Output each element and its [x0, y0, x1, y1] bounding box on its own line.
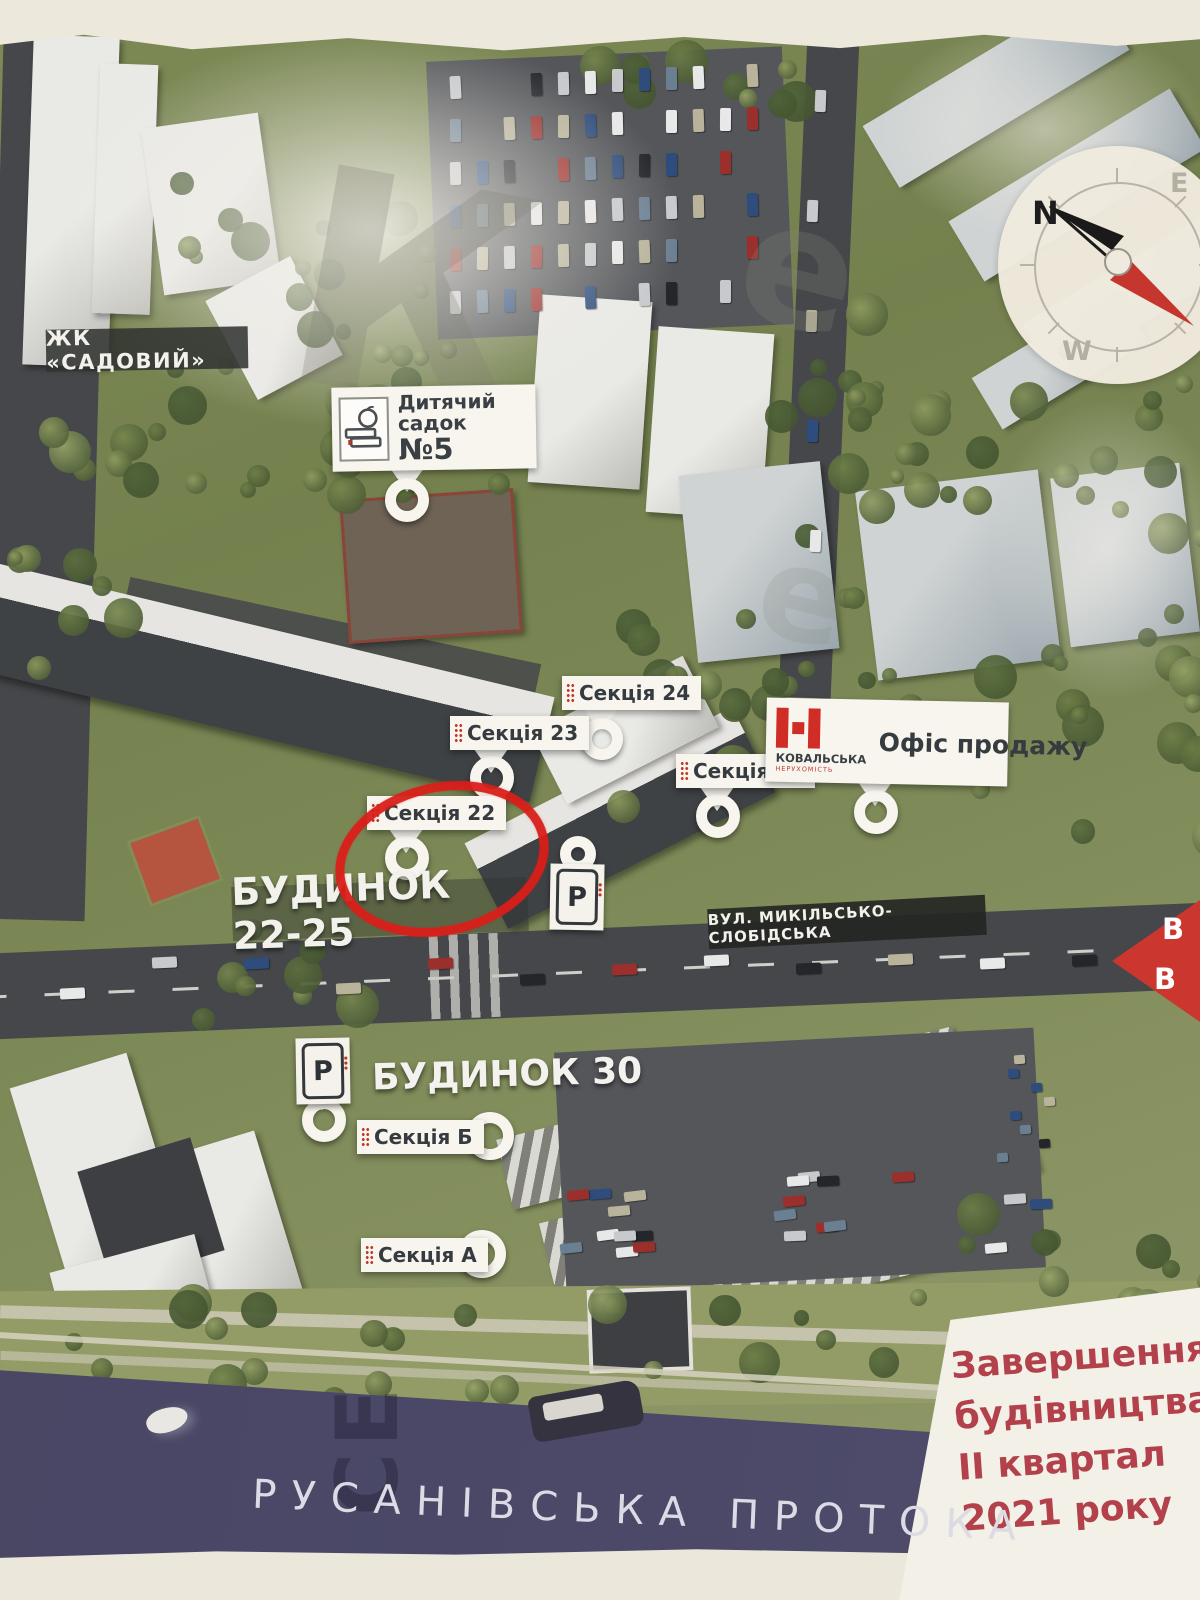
car: [450, 291, 462, 314]
tree: [974, 655, 1018, 699]
car: [585, 199, 597, 222]
car: [666, 196, 678, 219]
tree: [382, 201, 417, 236]
tree: [719, 691, 750, 722]
car: [980, 958, 1006, 970]
tree: [890, 469, 905, 484]
tree: [314, 259, 345, 290]
sales-office-label: КОВАЛЬСЬКА НЕРУХОМІСТЬ Офіс продажу: [765, 697, 1009, 786]
car: [888, 953, 914, 965]
car: [747, 236, 758, 259]
road-centerline: [0, 944, 1200, 999]
compass-east: E: [1170, 168, 1188, 199]
car: [720, 151, 731, 174]
tree: [336, 324, 352, 340]
car: [806, 420, 818, 442]
car: [428, 957, 454, 969]
section-marker-dots: [365, 1245, 374, 1265]
car: [450, 119, 461, 142]
car: [60, 988, 86, 1000]
parking-letter: P: [556, 869, 599, 926]
tree: [92, 576, 112, 596]
car: [477, 290, 489, 313]
tree: [762, 668, 789, 695]
car: [477, 247, 488, 270]
car: [244, 957, 270, 969]
car: [633, 1241, 656, 1252]
tree: [709, 1295, 741, 1327]
tree: [1053, 656, 1068, 671]
car: [666, 153, 678, 176]
tree: [391, 345, 413, 367]
car: [477, 161, 488, 184]
section-23-text: Секція 23: [467, 721, 578, 745]
tree: [465, 1379, 489, 1403]
tree: [858, 672, 875, 689]
tree: [736, 609, 756, 629]
section-b-text: Секція Б: [374, 1125, 473, 1149]
car: [747, 107, 759, 130]
tree: [846, 293, 888, 335]
car: [558, 157, 570, 180]
tree: [185, 472, 207, 494]
car: [1044, 1097, 1056, 1107]
car: [639, 154, 650, 177]
car: [558, 71, 570, 94]
tree: [848, 407, 873, 432]
car: [450, 248, 461, 271]
tree: [286, 283, 313, 310]
car: [530, 72, 542, 96]
car: [815, 90, 827, 112]
car: [531, 288, 543, 311]
tree: [440, 341, 457, 358]
building-tower: [528, 294, 653, 489]
tree: [413, 349, 429, 365]
tree: [739, 89, 758, 108]
car: [720, 280, 731, 303]
car: [152, 956, 178, 968]
tree: [963, 486, 992, 515]
car: [1038, 1139, 1050, 1149]
car: [720, 108, 731, 131]
car: [1003, 1193, 1026, 1204]
tree: [91, 1358, 113, 1380]
car: [531, 202, 542, 225]
car: [560, 1241, 583, 1253]
tree: [316, 220, 332, 236]
tree: [1076, 486, 1095, 505]
tree: [778, 60, 797, 79]
compass-north: N: [1032, 194, 1059, 232]
car: [997, 1153, 1009, 1163]
section-b-label: Секція Б: [357, 1120, 484, 1154]
car: [747, 193, 759, 216]
tree: [148, 423, 166, 441]
kindergarten-number: №5: [398, 432, 536, 465]
compass-rose: N E W S: [998, 146, 1200, 384]
parking-icon: P: [295, 1038, 350, 1105]
tree: [235, 976, 256, 997]
tree: [768, 90, 796, 118]
tree: [588, 1285, 626, 1323]
section-marker-dots: [680, 761, 689, 781]
tree: [882, 668, 897, 683]
tree: [1071, 819, 1095, 843]
car: [693, 66, 705, 89]
car: [796, 963, 822, 975]
car: [639, 68, 650, 91]
car: [585, 156, 597, 179]
tree: [910, 394, 952, 436]
section-marker-dots: [361, 1127, 370, 1147]
car: [585, 70, 596, 93]
tree: [1162, 1260, 1180, 1278]
car: [693, 195, 705, 218]
section-a-label: Секція А: [361, 1238, 488, 1272]
car: [450, 162, 462, 185]
parking-letter: P: [302, 1043, 345, 1100]
car: [585, 242, 596, 265]
sales-office-pin: [854, 790, 898, 834]
tree: [168, 386, 207, 425]
tree: [828, 453, 869, 494]
building-30-label: БУДИНОК 30: [372, 1050, 643, 1098]
section-24-label: Секція 24: [562, 676, 701, 710]
car: [504, 289, 515, 312]
tree: [848, 389, 865, 406]
exit-arrow-text: В: [1162, 912, 1184, 946]
compass-west: W: [1062, 336, 1092, 367]
car: [666, 110, 677, 133]
tree: [27, 656, 51, 680]
car: [612, 112, 623, 135]
tree: [205, 1317, 228, 1340]
tree: [490, 1375, 519, 1404]
tree: [843, 587, 865, 609]
car: [693, 109, 705, 132]
car: [806, 200, 818, 222]
kindergarten-building: [339, 488, 523, 644]
car: [817, 1175, 840, 1186]
tree: [607, 790, 640, 823]
tree: [414, 283, 429, 298]
tree: [940, 486, 957, 503]
building: [141, 113, 281, 296]
kindergarten-title: Дитячий садок: [397, 390, 536, 434]
exit-arrow-text: В: [1154, 962, 1176, 996]
car: [504, 203, 516, 226]
parking-icon: P: [549, 864, 604, 931]
tree: [859, 489, 894, 524]
car: [787, 1175, 810, 1187]
tree: [218, 208, 243, 233]
tree: [810, 359, 827, 376]
car: [704, 955, 730, 967]
car: [666, 67, 677, 90]
car: [612, 69, 623, 92]
tree: [169, 1290, 208, 1329]
car: [558, 243, 569, 266]
tree: [58, 605, 89, 636]
car: [666, 282, 677, 305]
kindergarten-icon: [338, 397, 389, 462]
car: [666, 239, 677, 262]
tree: [1053, 463, 1078, 488]
tree: [798, 378, 837, 417]
car: [1013, 1055, 1025, 1065]
tree: [794, 1310, 809, 1325]
kovalska-logo: [776, 707, 821, 748]
section-24-text: Секція 24: [579, 681, 690, 705]
car: [810, 530, 822, 552]
tree: [1031, 1229, 1058, 1256]
car: [746, 64, 758, 88]
kindergarten-label: Дитячий садок №5: [331, 384, 536, 472]
car: [504, 246, 515, 269]
tree: [1039, 1266, 1069, 1296]
car: [1031, 1083, 1043, 1093]
car: [639, 197, 651, 220]
section-a-text: Секція А: [378, 1243, 477, 1267]
car: [612, 198, 624, 221]
complex-label: ЖК «САДОВИЙ»: [46, 326, 249, 372]
car: [639, 240, 651, 263]
car: [503, 160, 515, 183]
tree: [957, 1193, 1000, 1236]
tree: [1184, 694, 1200, 713]
tree: [816, 1330, 836, 1350]
car: [614, 1230, 637, 1241]
car: [520, 973, 546, 985]
car: [892, 1171, 915, 1182]
car: [336, 982, 362, 994]
kindergarten-pin: [385, 478, 429, 522]
brand-name: КОВАЛЬСЬКА: [776, 750, 867, 766]
tree: [1010, 382, 1048, 420]
tree: [765, 400, 798, 433]
tree: [1144, 456, 1176, 488]
car: [449, 76, 461, 100]
printed-masterplan-photo: СЕ РУСАНІВСЬКА ПРОТОКА К е е ЖК «САДОВИЙ…: [0, 0, 1200, 1600]
section-marker-dots: [566, 683, 575, 703]
tree: [1071, 707, 1087, 723]
car: [1020, 1125, 1032, 1135]
tree: [104, 598, 143, 637]
tree: [958, 1236, 976, 1254]
car: [531, 245, 542, 268]
car: [558, 115, 569, 138]
car: [584, 285, 596, 309]
tree: [627, 624, 659, 656]
tree: [247, 465, 269, 487]
tree: [910, 1289, 927, 1306]
building-tower: [679, 461, 840, 663]
car: [1072, 955, 1098, 967]
car: [806, 310, 818, 332]
tree: [39, 417, 70, 448]
car: [612, 241, 623, 264]
tree: [241, 1292, 277, 1328]
car: [784, 1230, 806, 1241]
car: [639, 283, 651, 306]
tree: [170, 172, 193, 195]
car: [1009, 1111, 1021, 1121]
section-23-label: Секція 23: [450, 716, 589, 750]
car: [612, 155, 624, 178]
car: [531, 116, 543, 139]
tree: [1148, 513, 1189, 554]
exit-arrow: [1112, 900, 1200, 1022]
car: [612, 963, 638, 975]
tree: [418, 243, 438, 263]
section-25-pin: [696, 794, 740, 838]
car: [503, 117, 515, 141]
car: [584, 113, 596, 136]
section-marker-dots: [454, 723, 463, 743]
car: [558, 201, 569, 224]
tree: [327, 475, 366, 514]
tree: [192, 1008, 215, 1031]
tree: [1112, 501, 1129, 518]
car: [984, 1242, 1007, 1254]
tree: [1164, 604, 1184, 624]
kindergarten-text: Дитячий садок №5: [397, 390, 536, 465]
kovalska-logo-block: КОВАЛЬСЬКА НЕРУХОМІСТЬ: [775, 707, 867, 774]
barge-cabin: [542, 1393, 604, 1421]
tree: [798, 661, 815, 678]
car: [477, 204, 488, 227]
sales-office-text: Офіс продажу: [878, 727, 1087, 760]
car: [607, 1205, 630, 1217]
car: [1030, 1199, 1052, 1210]
tree: [895, 443, 917, 465]
tree: [360, 1320, 388, 1348]
car: [1008, 1069, 1020, 1079]
car: [450, 205, 461, 228]
